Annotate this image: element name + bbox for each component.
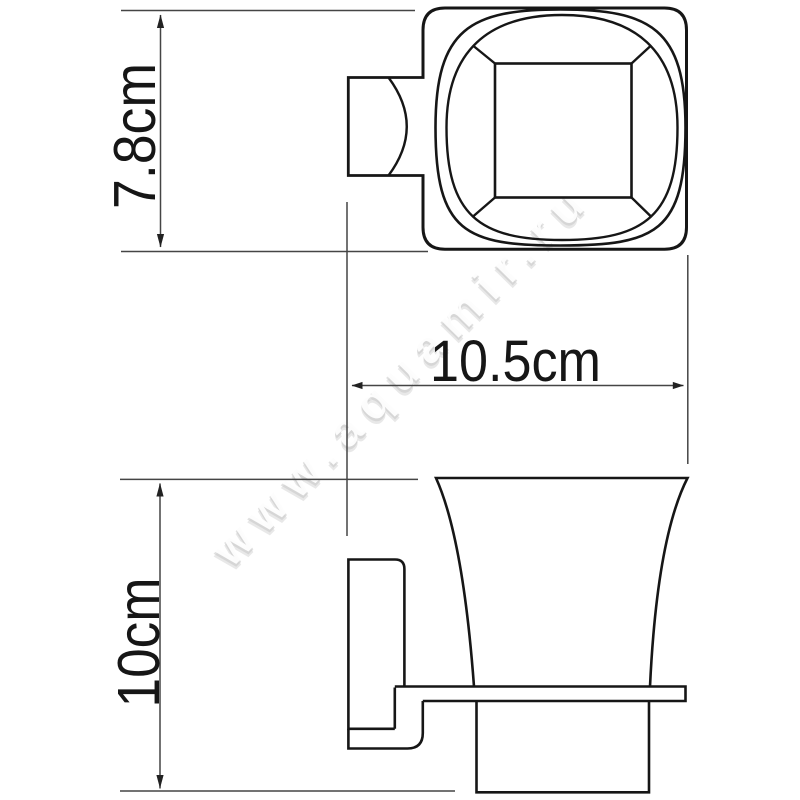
svg-text:7.8cm: 7.8cm [102,63,168,209]
svg-text:10cm: 10cm [106,578,172,708]
svg-text:10.5cm: 10.5cm [430,329,601,394]
